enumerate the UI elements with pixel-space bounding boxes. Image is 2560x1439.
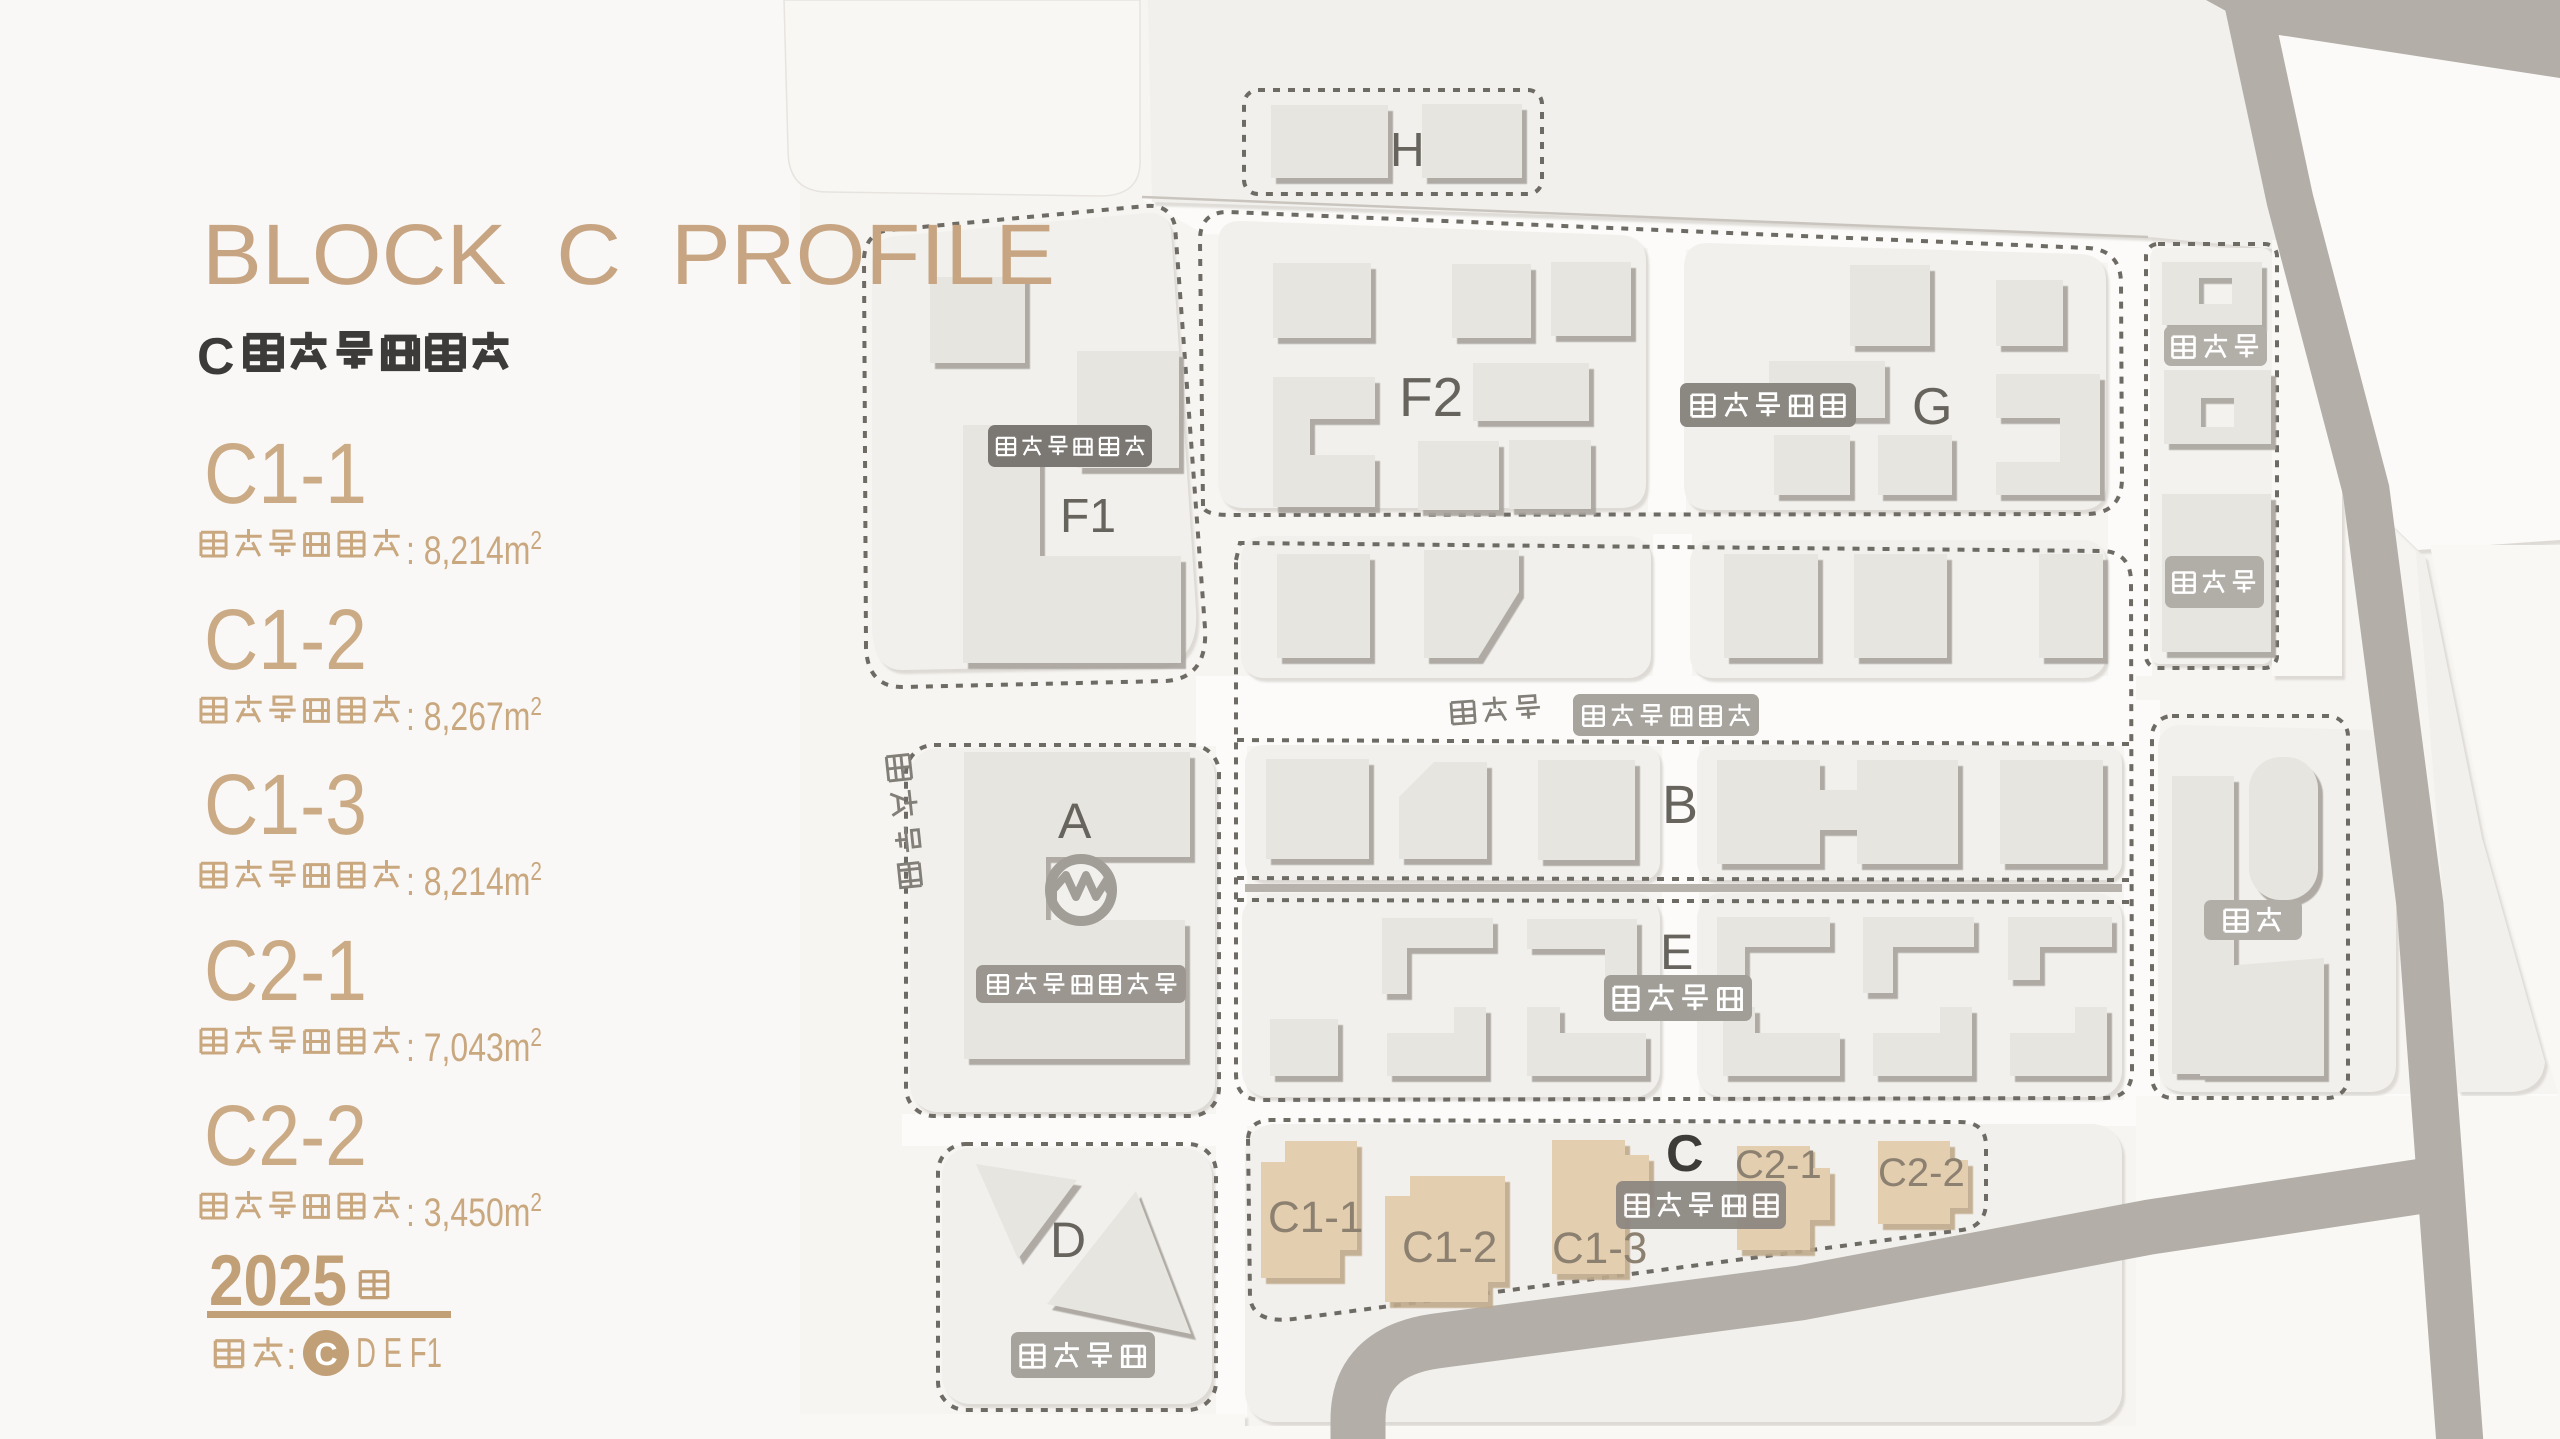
svg-text:C1-3: C1-3 xyxy=(204,757,367,853)
svg-text:G: G xyxy=(1912,378,1952,436)
svg-text:: 8,214m2: : 8,214m2 xyxy=(406,856,542,904)
svg-text:: 7,043m2: : 7,043m2 xyxy=(406,1022,542,1070)
svg-text:C: C xyxy=(314,1336,337,1372)
svg-text:C: C xyxy=(197,328,235,386)
svg-text:C2-1: C2-1 xyxy=(204,923,367,1019)
svg-text:D E F1: D E F1 xyxy=(356,1329,442,1376)
svg-text:: 8,214m2: : 8,214m2 xyxy=(406,525,542,573)
svg-text:F2: F2 xyxy=(1399,366,1463,428)
svg-text:E: E xyxy=(1660,924,1693,980)
svg-text:C: C xyxy=(1666,1125,1704,1183)
svg-text::: : xyxy=(286,1336,297,1378)
svg-text:H: H xyxy=(1390,124,1425,177)
svg-text:BLOCK C PROFILE: BLOCK C PROFILE xyxy=(202,207,1055,303)
svg-text:2025: 2025 xyxy=(209,1241,347,1321)
svg-text:C2-1: C2-1 xyxy=(1735,1143,1822,1187)
svg-text:A: A xyxy=(1058,793,1092,849)
svg-text:B: B xyxy=(1662,775,1698,835)
svg-text:C1-2: C1-2 xyxy=(1402,1223,1497,1272)
svg-text:F1: F1 xyxy=(1060,490,1116,543)
svg-text:C1-3: C1-3 xyxy=(1552,1224,1647,1273)
svg-text:C1-1: C1-1 xyxy=(204,426,367,522)
svg-text:C1-1: C1-1 xyxy=(1268,1193,1363,1242)
svg-text:C1-2: C1-2 xyxy=(204,592,367,688)
svg-text:C2-2: C2-2 xyxy=(204,1088,367,1184)
svg-text:: 3,450m2: : 3,450m2 xyxy=(406,1187,542,1235)
svg-text:D: D xyxy=(1050,1212,1086,1268)
svg-text:C2-2: C2-2 xyxy=(1878,1151,1965,1195)
svg-text:: 8,267m2: : 8,267m2 xyxy=(406,691,542,739)
